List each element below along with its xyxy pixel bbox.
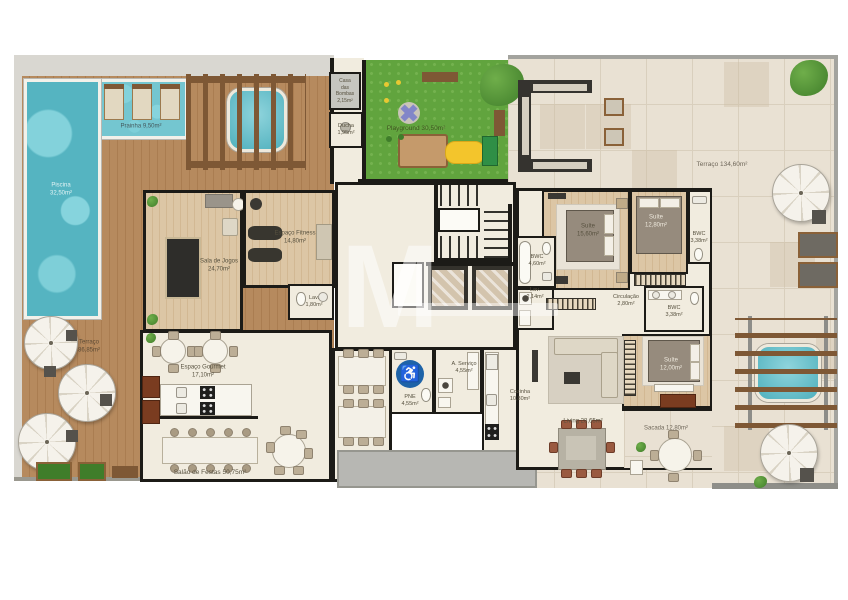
- pergola-beams: [735, 318, 837, 428]
- wine-cabinet: [142, 376, 160, 398]
- chair: [606, 442, 615, 453]
- elevator-hall: [392, 262, 424, 308]
- chair: [229, 346, 238, 357]
- label-suite1: Suíte 15,60m²: [577, 224, 599, 239]
- chair: [194, 346, 203, 357]
- label-sacada: Sacada 12,80m²: [644, 425, 688, 433]
- chair: [358, 399, 369, 408]
- chair: [152, 346, 161, 357]
- label-terraco-left: Terraço 86,85m²: [78, 340, 100, 355]
- bistro-table: [160, 338, 186, 364]
- sofa-cushions: [533, 162, 587, 169]
- pouf: [630, 460, 643, 475]
- wardrobe: [634, 274, 686, 286]
- sofa: [601, 352, 618, 398]
- sink: [668, 291, 676, 299]
- sink: [692, 196, 707, 204]
- chair: [168, 331, 179, 340]
- play-post: [384, 82, 389, 87]
- planter: [36, 462, 72, 481]
- deck-chair: [100, 394, 112, 406]
- toilet: [421, 388, 431, 402]
- label-suite2: Suíte 12,80m²: [645, 215, 667, 230]
- elevator: [472, 266, 512, 310]
- wheelchair-icon: ♿: [396, 360, 424, 388]
- sink: [486, 394, 497, 406]
- chair: [576, 469, 587, 478]
- play-post: [398, 134, 404, 140]
- chair: [358, 385, 369, 394]
- wardrobe: [546, 298, 596, 310]
- pillow: [639, 198, 659, 208]
- dresser: [660, 394, 696, 408]
- cooktop: [200, 402, 215, 415]
- label-bwc-suite2: BWC 3,38m²: [690, 231, 707, 245]
- stair-flight: [440, 185, 478, 206]
- stair-landing: [438, 208, 480, 232]
- balcony-table: [658, 438, 692, 472]
- chair: [373, 437, 384, 446]
- chair: [343, 385, 354, 394]
- chair: [358, 437, 369, 446]
- label-prainha: Prainha 9,50m²: [120, 123, 161, 131]
- label-playground: Playground 30,50m²: [387, 125, 446, 133]
- pillow: [604, 214, 614, 234]
- floor-plan-canvas: { "plan": {"type": "residential-floor-pl…: [0, 0, 848, 600]
- coffee-table: [564, 372, 580, 384]
- toilet: [694, 248, 703, 261]
- counter: [519, 310, 531, 326]
- stool: [206, 428, 215, 437]
- bench: [494, 110, 505, 136]
- chair: [343, 437, 354, 446]
- tv: [532, 350, 538, 382]
- stone-patch: [540, 104, 585, 149]
- play-post: [386, 136, 392, 142]
- slide-platform: [482, 136, 498, 166]
- label-circulacao: Circulação 2,80m²: [613, 294, 639, 308]
- deck-left-edge: [14, 76, 22, 480]
- washer: [438, 378, 453, 393]
- label-sala-jogos: Sala de Jogos 24,70m²: [200, 259, 238, 274]
- sidewalk: [337, 450, 537, 488]
- play-post: [396, 80, 401, 85]
- label-terraco-top: Terraço 134,60m²: [697, 161, 748, 169]
- label-fitness: Espaço Fitness 14,80m²: [274, 231, 315, 246]
- chair: [296, 430, 307, 439]
- chair: [358, 349, 369, 358]
- chair: [650, 450, 659, 461]
- pergola-beams: [186, 74, 306, 170]
- chair: [373, 385, 384, 394]
- chair: [266, 442, 275, 453]
- label-casa-bombas: Casa das Bombas 2,15m²: [336, 78, 354, 104]
- chair: [210, 331, 221, 340]
- label-piscina: Piscina 32,50m²: [50, 183, 72, 198]
- banquet-table: [162, 437, 258, 464]
- pillow: [660, 198, 680, 208]
- umbrella: [58, 364, 116, 422]
- armchair: [222, 218, 238, 236]
- slide: [445, 141, 485, 164]
- label-living: Living 28,65m²: [563, 418, 602, 426]
- stone-top-edge: [508, 55, 838, 59]
- deck-chair: [66, 430, 78, 442]
- bistro-table: [202, 338, 228, 364]
- chair: [293, 466, 304, 475]
- dining-table-top: [566, 436, 596, 460]
- pillow: [690, 344, 700, 362]
- exercise-mat: [316, 224, 332, 260]
- chair: [280, 426, 291, 435]
- stair-wall: [508, 204, 512, 262]
- nightstand: [616, 198, 628, 209]
- treadmill: [248, 248, 282, 262]
- sofa-cushions: [533, 84, 587, 91]
- label-pne: PNE 4,55m²: [401, 394, 418, 408]
- sink: [542, 272, 552, 281]
- chair: [373, 349, 384, 358]
- fridge: [486, 354, 498, 370]
- toilet: [542, 242, 551, 255]
- label-bwc-suite1: BWC 4,60m²: [528, 254, 545, 268]
- pool-lounger: [132, 84, 152, 120]
- dining-table: [338, 406, 386, 438]
- dining-table: [338, 356, 386, 386]
- sandbox: [398, 134, 448, 168]
- sofa-cushions: [522, 97, 529, 155]
- label-lav-comum: Lav. 1,80m²: [305, 295, 322, 309]
- stool: [242, 428, 251, 437]
- terrace-chair: [800, 468, 814, 482]
- wine-cabinet: [142, 400, 160, 424]
- console-table: [205, 194, 233, 208]
- bed-bench: [654, 384, 694, 392]
- stone-patch: [724, 62, 769, 107]
- stool: [188, 428, 197, 437]
- wall-art: [548, 193, 566, 199]
- cooktop: [200, 386, 215, 399]
- sun-lounger: [798, 262, 838, 288]
- lounger-headrest: [160, 84, 180, 89]
- stair-flight: [440, 236, 478, 258]
- planter: [78, 462, 106, 481]
- swimming-pool: [24, 79, 101, 319]
- label-lav-apto: Lav. 2,14m²: [526, 287, 543, 301]
- pillow: [690, 362, 700, 380]
- chair: [274, 466, 285, 475]
- wheelchair-glyph: ♿: [400, 364, 420, 384]
- chair: [373, 399, 384, 408]
- sink: [394, 352, 407, 360]
- stone-bottom-edge: [712, 483, 838, 489]
- chair: [693, 450, 702, 461]
- chair: [549, 442, 558, 453]
- label-suite3: Suíte 12,00m²: [660, 358, 682, 373]
- lounger-headrest: [104, 84, 124, 89]
- chair: [561, 469, 572, 478]
- umbrella: [24, 316, 78, 370]
- pillow: [604, 236, 614, 256]
- terrace-chair: [812, 210, 826, 224]
- round-table: [272, 434, 306, 468]
- sink: [176, 387, 187, 398]
- deck-chair: [66, 330, 77, 341]
- label-bwc-suite3: BWC 3,38m²: [665, 305, 682, 319]
- label-ducha: Ducha 1,95m²: [337, 123, 354, 137]
- deck-chair: [44, 366, 56, 377]
- stool: [224, 428, 233, 437]
- label-gourmet: Espaço Gourmet 17,10m²: [180, 365, 225, 380]
- stool: [170, 428, 179, 437]
- chair: [343, 349, 354, 358]
- sink: [176, 403, 187, 414]
- billiard-table: [165, 237, 201, 299]
- play-post: [384, 98, 389, 103]
- stove: [485, 424, 499, 440]
- outdoor-armchair: [604, 98, 624, 116]
- chair: [591, 469, 602, 478]
- outdoor-armchair: [604, 128, 624, 146]
- pool-lounger: [104, 84, 124, 120]
- chair: [168, 364, 179, 373]
- label-cozinha: Cozinha 10,80m²: [510, 389, 530, 403]
- toilet: [690, 292, 699, 305]
- label-salao: Salão de Festas 50,75m²: [174, 469, 247, 477]
- lounger-headrest: [132, 84, 152, 89]
- chair: [668, 473, 679, 482]
- nightstand: [616, 272, 628, 283]
- bench: [422, 72, 458, 82]
- stair-wall: [434, 182, 438, 260]
- chair: [343, 399, 354, 408]
- stair-flight: [484, 206, 510, 258]
- weight-plate: [250, 198, 262, 210]
- sun-lounger: [798, 232, 838, 258]
- wardrobe: [624, 340, 636, 396]
- label-servico: A. Serviço 4,55m²: [451, 361, 476, 375]
- sink: [652, 291, 660, 299]
- wall: [622, 408, 712, 411]
- bench: [112, 466, 138, 478]
- elevator: [428, 266, 468, 310]
- chair: [304, 448, 313, 459]
- pool-lounger: [160, 84, 180, 120]
- laundry-tank: [438, 397, 451, 408]
